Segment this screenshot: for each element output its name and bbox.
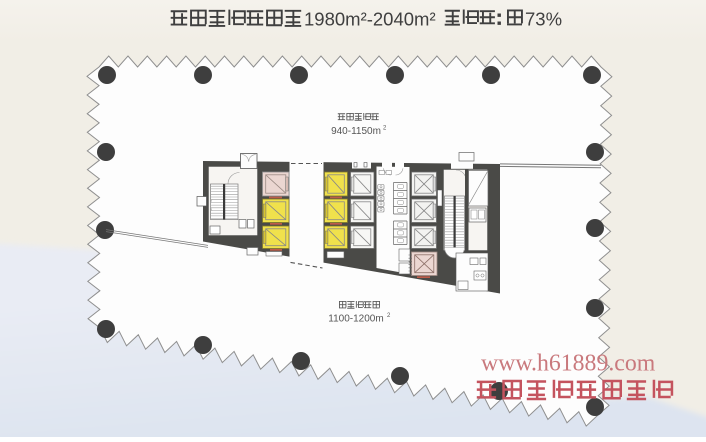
svg-text:1980m²-2040m²: 1980m²-2040m² [304,9,436,30]
svg-text:1100-1200m: 1100-1200m [328,313,383,324]
svg-text:www.h61889.com: www.h61889.com [481,351,656,377]
svg-text:940-1150m: 940-1150m [331,126,381,137]
svg-text:73%: 73% [525,9,562,30]
